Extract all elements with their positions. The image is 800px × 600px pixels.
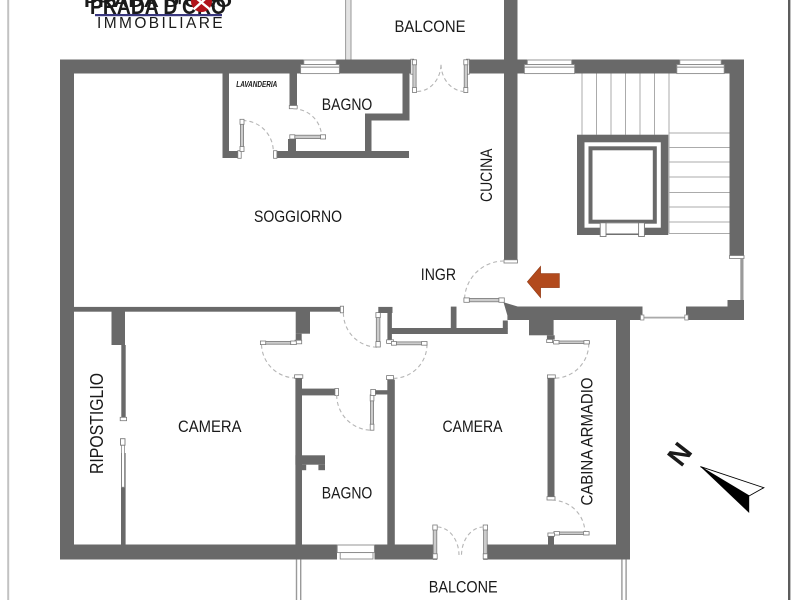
svg-text:IMMOBILIARE: IMMOBILIARE [97, 15, 225, 32]
svg-text:BALCONE: BALCONE [395, 18, 466, 36]
svg-text:LAVANDERIA: LAVANDERIA [236, 80, 277, 89]
svg-text:SOGGIORNO: SOGGIORNO [254, 208, 342, 226]
svg-text:BALCONE: BALCONE [429, 579, 498, 597]
svg-text:CAMERA: CAMERA [443, 418, 503, 436]
svg-text:CABINA ARMADIO: CABINA ARMADIO [577, 378, 596, 506]
svg-text:CAMERA: CAMERA [178, 418, 242, 436]
svg-text:CUCINA: CUCINA [478, 148, 496, 202]
svg-text:BAGNO: BAGNO [322, 485, 373, 503]
svg-text:BAGNO: BAGNO [322, 96, 373, 114]
svg-text:RIPOSTIGLIO: RIPOSTIGLIO [86, 373, 107, 474]
svg-text:INGR: INGR [421, 266, 456, 284]
